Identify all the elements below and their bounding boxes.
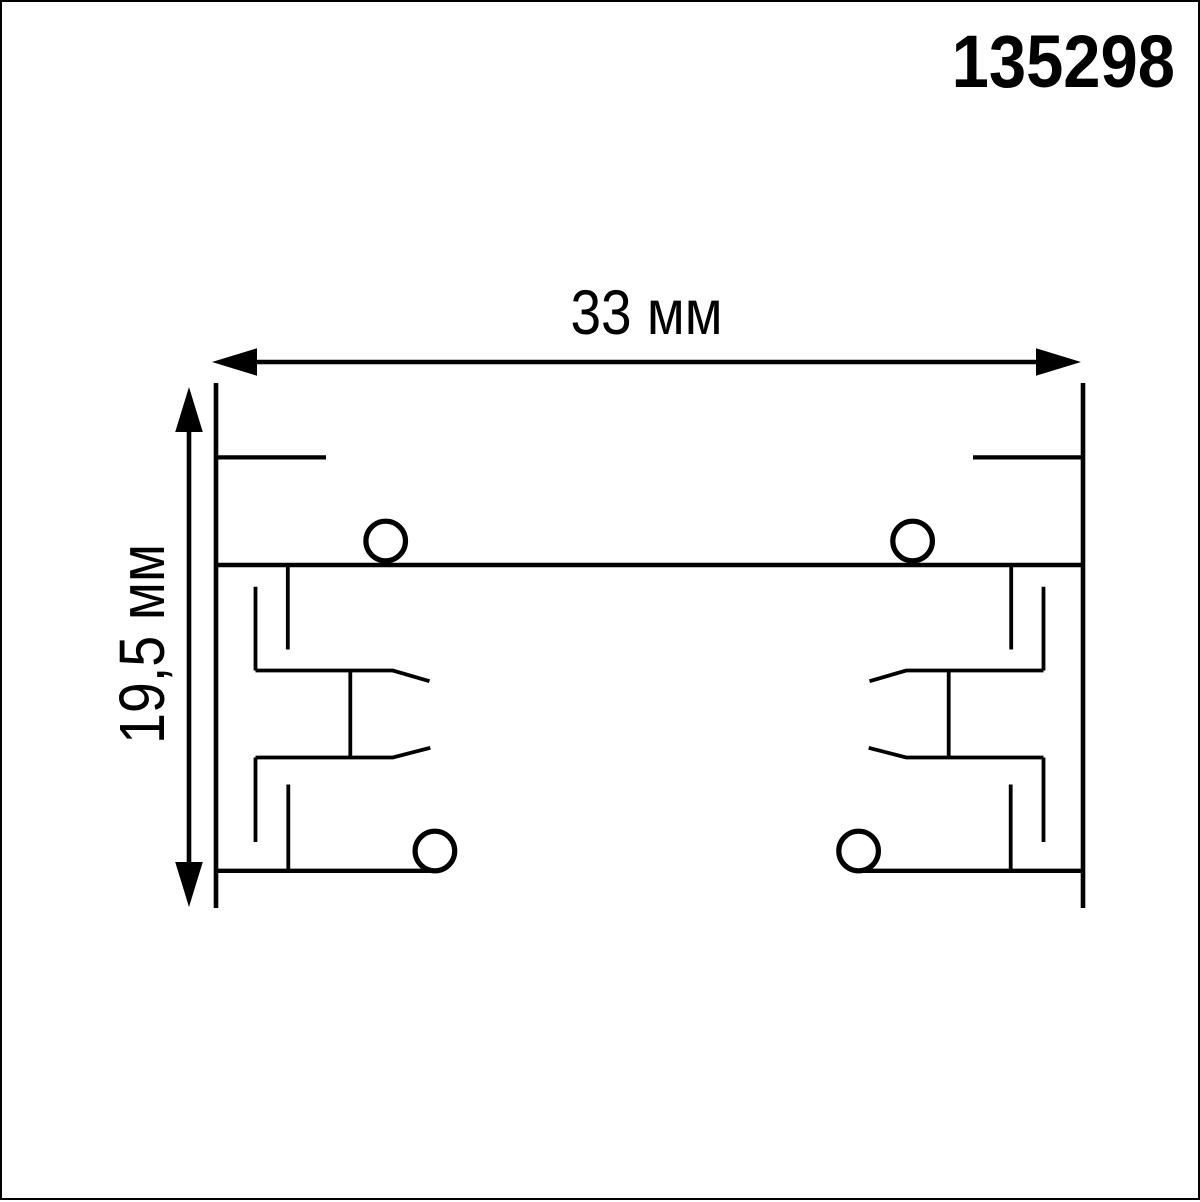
svg-text:33 мм: 33 мм (570, 278, 722, 348)
svg-text:19,5 мм: 19,5 мм (106, 544, 178, 744)
svg-text:135298: 135298 (952, 20, 1175, 103)
